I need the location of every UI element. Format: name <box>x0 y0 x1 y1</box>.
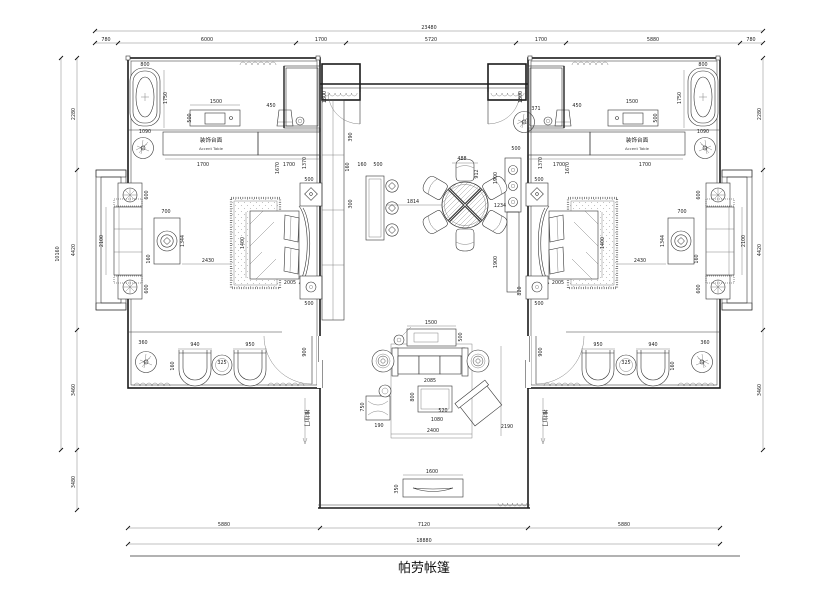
dim-label: 780 <box>746 37 755 43</box>
accent-table-label-left-en: Accent Table <box>199 146 224 151</box>
dim-label: 160 <box>670 361 676 370</box>
sliding-door-label-right: 推拉门 <box>541 410 549 427</box>
dim-label: 350 <box>394 484 400 493</box>
dim-label: 600 <box>696 190 702 199</box>
dim-label: 1700 <box>553 162 565 168</box>
dim-label: 2100 <box>99 235 105 247</box>
dim-label: 6000 <box>201 37 213 43</box>
dim-label: 3460 <box>71 384 77 396</box>
dim-label: 1500 <box>210 99 222 105</box>
dim-label: 18880 <box>416 538 431 544</box>
hall-console-table <box>366 176 384 240</box>
dim-label: 160 <box>694 254 700 263</box>
dim-label: 450 <box>572 103 581 109</box>
bedroom-left <box>96 170 322 310</box>
dim-label: 1370 <box>302 157 308 169</box>
living-room <box>303 327 545 506</box>
sliding-door-opening-left <box>317 336 323 388</box>
dim-label: 160 <box>146 254 152 263</box>
dim-label: 520 <box>438 408 447 414</box>
dim-label: 600 <box>144 284 150 293</box>
dim-label: 2280 <box>757 108 763 120</box>
accent-table-label-right-en: Accent Table <box>625 146 650 151</box>
dim-label: 800 <box>410 392 416 401</box>
dim-label: 488 <box>457 156 466 162</box>
dim-label: 1800 <box>518 91 524 103</box>
dim-label: 800 <box>140 62 149 68</box>
dim-label: 5880 <box>647 37 659 43</box>
title-block: 帕劳帐篷 <box>130 556 740 576</box>
dim-label: 1670 <box>275 162 281 174</box>
dimension-lines <box>59 29 765 546</box>
sofa-console <box>407 329 456 346</box>
dim-label: 3460 <box>757 384 763 396</box>
dim-label: 500 <box>653 113 659 122</box>
dim-label: 450 <box>266 103 275 109</box>
dim-label: 1700 <box>197 162 209 168</box>
dim-label: 780 <box>101 37 110 43</box>
dim-label: 500 <box>458 332 464 341</box>
stool <box>379 385 391 397</box>
dim-label: 3480 <box>71 476 77 488</box>
dim-label: 1344 <box>660 235 666 247</box>
floor-lamp <box>394 335 404 345</box>
sofa <box>392 348 468 376</box>
dim-label: 912 <box>474 169 480 178</box>
dim-label: 1814 <box>407 199 419 205</box>
dim-label: 940 <box>190 342 199 348</box>
floor-plan-canvas: 23480 780 6000 1700 5720 1700 5880 780 5… <box>0 0 837 592</box>
bathroom-left <box>128 62 320 159</box>
dim-label: 900 <box>302 347 308 356</box>
dim-label: 950 <box>245 342 254 348</box>
dim-label: 500 <box>534 177 543 183</box>
dim-label: 325 <box>621 360 630 366</box>
dim-label: 4420 <box>757 244 763 256</box>
seating-strip-left <box>128 332 312 386</box>
dim-label: 500 <box>187 113 193 122</box>
dim-label: 1900 <box>493 256 499 268</box>
dim-label: 23480 <box>421 25 436 31</box>
dim-label: 900 <box>538 347 544 356</box>
seating-strip-right <box>536 332 720 386</box>
sliding-door-label-left: 推拉门 <box>303 410 311 427</box>
dim-label: 2085 <box>424 378 436 384</box>
dim-label: 500 <box>511 146 520 152</box>
dim-label: 160 <box>170 361 176 370</box>
dim-label: 2400 <box>427 428 439 434</box>
dim-label: 1090 <box>697 129 709 135</box>
dim-label: 5880 <box>618 522 630 528</box>
dim-label: 700 <box>677 209 686 215</box>
dim-label: 1600 <box>426 469 438 475</box>
accent-table-label-left-cn: 装饰台面 <box>200 136 223 144</box>
dim-label: 2430 <box>634 258 646 264</box>
dim-label: 1500 <box>626 99 638 105</box>
dim-label: 360 <box>138 340 147 346</box>
dim-label: 1090 <box>139 129 151 135</box>
drawing-title: 帕劳帐篷 <box>398 560 450 576</box>
dim-label: 1750 <box>163 92 169 104</box>
dim-label: 1370 <box>538 157 544 169</box>
dim-label: 4420 <box>71 244 77 256</box>
dim-label: 2280 <box>71 108 77 120</box>
dim-label: 700 <box>161 209 170 215</box>
dim-label: 390 <box>348 132 354 141</box>
dim-label: 940 <box>648 342 657 348</box>
dim-label: 1670 <box>565 162 571 174</box>
dim-label: 500 <box>304 301 313 307</box>
dim-label: 7120 <box>418 522 430 528</box>
dim-label: 800 <box>698 62 707 68</box>
dim-label: 500 <box>304 177 313 183</box>
dim-label: 1700 <box>283 162 295 168</box>
dim-label: 600 <box>144 190 150 199</box>
dim-label: 2005 <box>552 280 564 286</box>
dim-label: 2100 <box>741 235 747 247</box>
dim-label: 160 <box>345 162 351 171</box>
dim-label: 1500 <box>425 320 437 326</box>
dim-label: 360 <box>700 340 709 346</box>
floor-plan-drawing: 23480 780 6000 1700 5720 1700 5880 780 5… <box>0 0 837 592</box>
dim-label: 1400 <box>600 237 606 249</box>
dim-label: 1344 <box>180 235 186 247</box>
sliding-door-opening-right <box>525 336 531 388</box>
dim-label: 190 <box>374 423 383 429</box>
dim-label: 2190 <box>501 424 513 430</box>
dim-label: 5880 <box>218 522 230 528</box>
dim-label: 2430 <box>202 258 214 264</box>
dim-label: 1700 <box>639 162 651 168</box>
dim-label: 1750 <box>677 92 683 104</box>
dim-label: 1400 <box>240 237 246 249</box>
dim-label: 1900 <box>493 172 499 184</box>
dim-label: 1080 <box>431 417 443 423</box>
dim-label: 500 <box>534 301 543 307</box>
dim-label: 1234 <box>494 203 506 209</box>
dim-label: 325 <box>217 360 226 366</box>
dim-label: 820 <box>517 286 523 295</box>
dim-label: 300 <box>348 199 354 208</box>
dim-label: 750 <box>360 402 366 411</box>
dim-label: 1700 <box>315 37 327 43</box>
dim-label: 10160 <box>55 246 61 261</box>
dim-label: 600 <box>696 284 702 293</box>
dim-label: 950 <box>593 342 602 348</box>
dim-label: 371 <box>531 106 540 112</box>
dim-label: 160 <box>357 162 366 168</box>
accent-table-label-right-cn: 装饰台面 <box>626 136 649 144</box>
dim-label: 500 <box>373 162 382 168</box>
dim-label: 1700 <box>535 37 547 43</box>
dim-label: 2005 <box>284 280 296 286</box>
chaise-lounge <box>455 380 503 427</box>
bathroom-right <box>528 62 720 159</box>
tv-console <box>403 479 463 497</box>
dimension-labels: 23480 780 6000 1700 5720 1700 5880 780 5… <box>55 25 763 544</box>
bedroom-right <box>526 170 752 310</box>
dining-table <box>442 182 488 228</box>
dim-label: 1800 <box>322 91 328 103</box>
dim-label: 5720 <box>425 37 437 43</box>
bench <box>366 396 390 420</box>
